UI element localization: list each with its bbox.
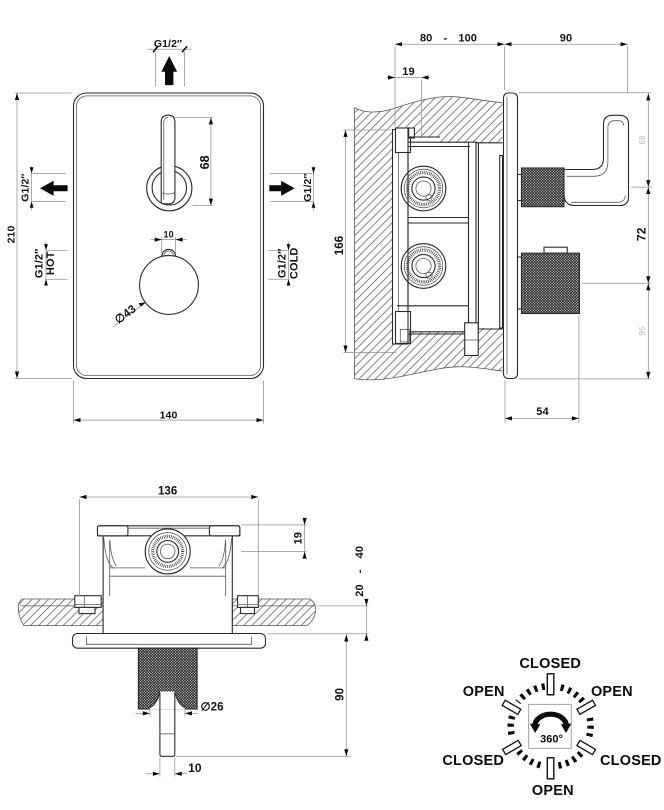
svg-text:G1/2″: G1/2″ — [154, 38, 182, 50]
svg-text:19: 19 — [292, 532, 304, 544]
svg-text:G1/2″: G1/2″ — [277, 248, 289, 278]
svg-text:G1/2″: G1/2″ — [302, 173, 314, 201]
svg-text:90: 90 — [335, 688, 347, 701]
svg-text:54: 54 — [536, 406, 549, 418]
svg-text:136: 136 — [158, 486, 178, 498]
svg-text:CLOSED: CLOSED — [442, 753, 504, 769]
svg-text:360°: 360° — [540, 734, 563, 746]
svg-text:80 - 100: 80 - 100 — [420, 33, 477, 45]
svg-text:72: 72 — [634, 227, 648, 241]
svg-text:10: 10 — [163, 229, 173, 239]
svg-text:G1/2″: G1/2″ — [20, 173, 32, 201]
svg-text:CLOSED: CLOSED — [600, 753, 662, 769]
svg-text:68: 68 — [198, 155, 212, 169]
svg-text:95: 95 — [638, 326, 647, 335]
svg-text:HOT: HOT — [45, 251, 57, 275]
svg-text:68: 68 — [638, 135, 647, 144]
svg-text:20 - 40: 20 - 40 — [354, 546, 366, 597]
svg-text:10: 10 — [188, 761, 202, 775]
svg-text:CLOSED: CLOSED — [519, 656, 581, 672]
svg-text:210: 210 — [6, 226, 18, 244]
svg-text:140: 140 — [160, 410, 178, 422]
svg-text:19: 19 — [402, 66, 414, 78]
svg-text:COLD: COLD — [288, 248, 300, 280]
svg-text:∅26: ∅26 — [201, 702, 224, 714]
svg-text:OPEN: OPEN — [591, 684, 633, 700]
svg-text:G1/2″: G1/2″ — [34, 248, 46, 278]
svg-text:90: 90 — [560, 33, 572, 45]
svg-text:166: 166 — [334, 236, 346, 256]
svg-text:OPEN: OPEN — [463, 684, 505, 700]
svg-text:OPEN: OPEN — [532, 783, 574, 799]
